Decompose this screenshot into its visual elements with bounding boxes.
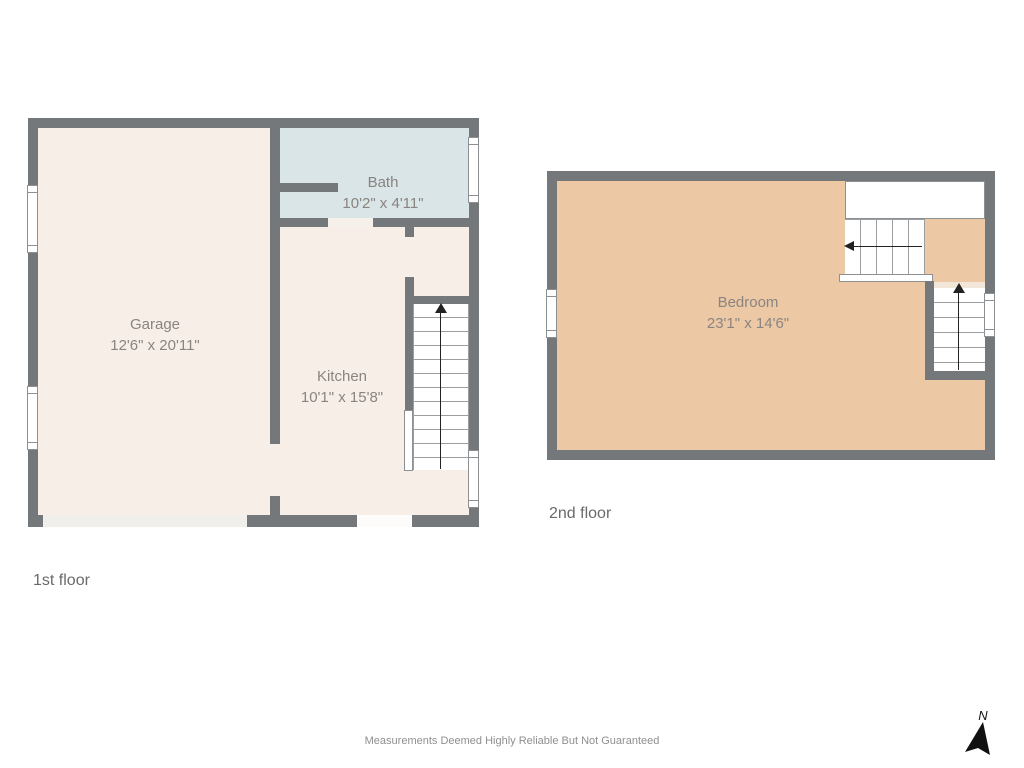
stairs-direction-line: [440, 312, 441, 469]
wall-bath-bottom: [280, 218, 469, 227]
room-name-bedroom: Bedroom: [658, 292, 838, 313]
north-compass: N: [950, 698, 1010, 764]
garage-door-opening: [43, 515, 247, 527]
north-arrow-icon: [965, 722, 990, 755]
entry-door-opening: [357, 515, 412, 527]
wall2-top: [547, 171, 995, 181]
room-label-bedroom: Bedroom 23'1" x 14'6": [658, 292, 838, 334]
room-name-bath: Bath: [293, 172, 473, 193]
window-stairwell-right: [984, 293, 995, 337]
window-bedroom-left: [546, 289, 557, 338]
wall-stairwell-bottom: [925, 371, 985, 380]
wall2-bottom: [547, 450, 995, 460]
stair-ledge: [839, 274, 933, 282]
wall-bottom-middle: [247, 515, 357, 527]
wall-top: [28, 118, 479, 128]
bath-door-opening: [328, 218, 373, 227]
stairs-up-arrow-icon: [435, 303, 447, 313]
stair-landing: [845, 181, 985, 219]
floor-plan-page: Garage 12'6" x 20'11" Bath 10'2" x 4'11"…: [0, 0, 1024, 768]
disclaimer-text: Measurements Deemed Highly Reliable But …: [0, 735, 1024, 747]
room-label-bath: Bath 10'2" x 4'11": [293, 172, 473, 214]
room-dims-bedroom: 23'1" x 14'6": [658, 313, 838, 334]
wall-bottom-left-stub: [28, 515, 43, 527]
stairs-left-arrow-icon: [844, 241, 854, 251]
first-floor-caption: 1st floor: [33, 572, 90, 590]
room-dims-bath: 10'2" x 4'11": [293, 193, 473, 214]
wall-garage-divider-lower: [270, 496, 280, 515]
wall-bottom-right: [412, 515, 479, 527]
window-garage-left-upper: [27, 185, 38, 253]
stairs-lower-up-arrow-icon: [953, 283, 965, 293]
wall-kitchen-right-upper: [405, 227, 414, 237]
second-floor-caption: 2nd floor: [549, 505, 611, 523]
wall-left: [28, 118, 38, 527]
wall-stairwell-left: [925, 281, 934, 380]
stairs-railing: [404, 410, 413, 471]
compass-north-label: N: [978, 708, 988, 723]
window-garage-left-lower: [27, 386, 38, 450]
room-name-garage: Garage: [65, 314, 245, 335]
room-label-garage: Garage 12'6" x 20'11": [65, 314, 245, 356]
stairs-lower-direction-line: [958, 292, 959, 370]
room-dims-kitchen: 10'1" x 15'8": [252, 387, 432, 408]
window-kitchen-right: [468, 450, 479, 508]
room-name-kitchen: Kitchen: [252, 366, 432, 387]
stairs-upper-direction-line: [853, 246, 922, 247]
stairs-lower-run: [934, 288, 985, 371]
room-label-kitchen: Kitchen 10'1" x 15'8": [252, 366, 432, 408]
room-dims-garage: 12'6" x 20'11": [65, 335, 245, 356]
